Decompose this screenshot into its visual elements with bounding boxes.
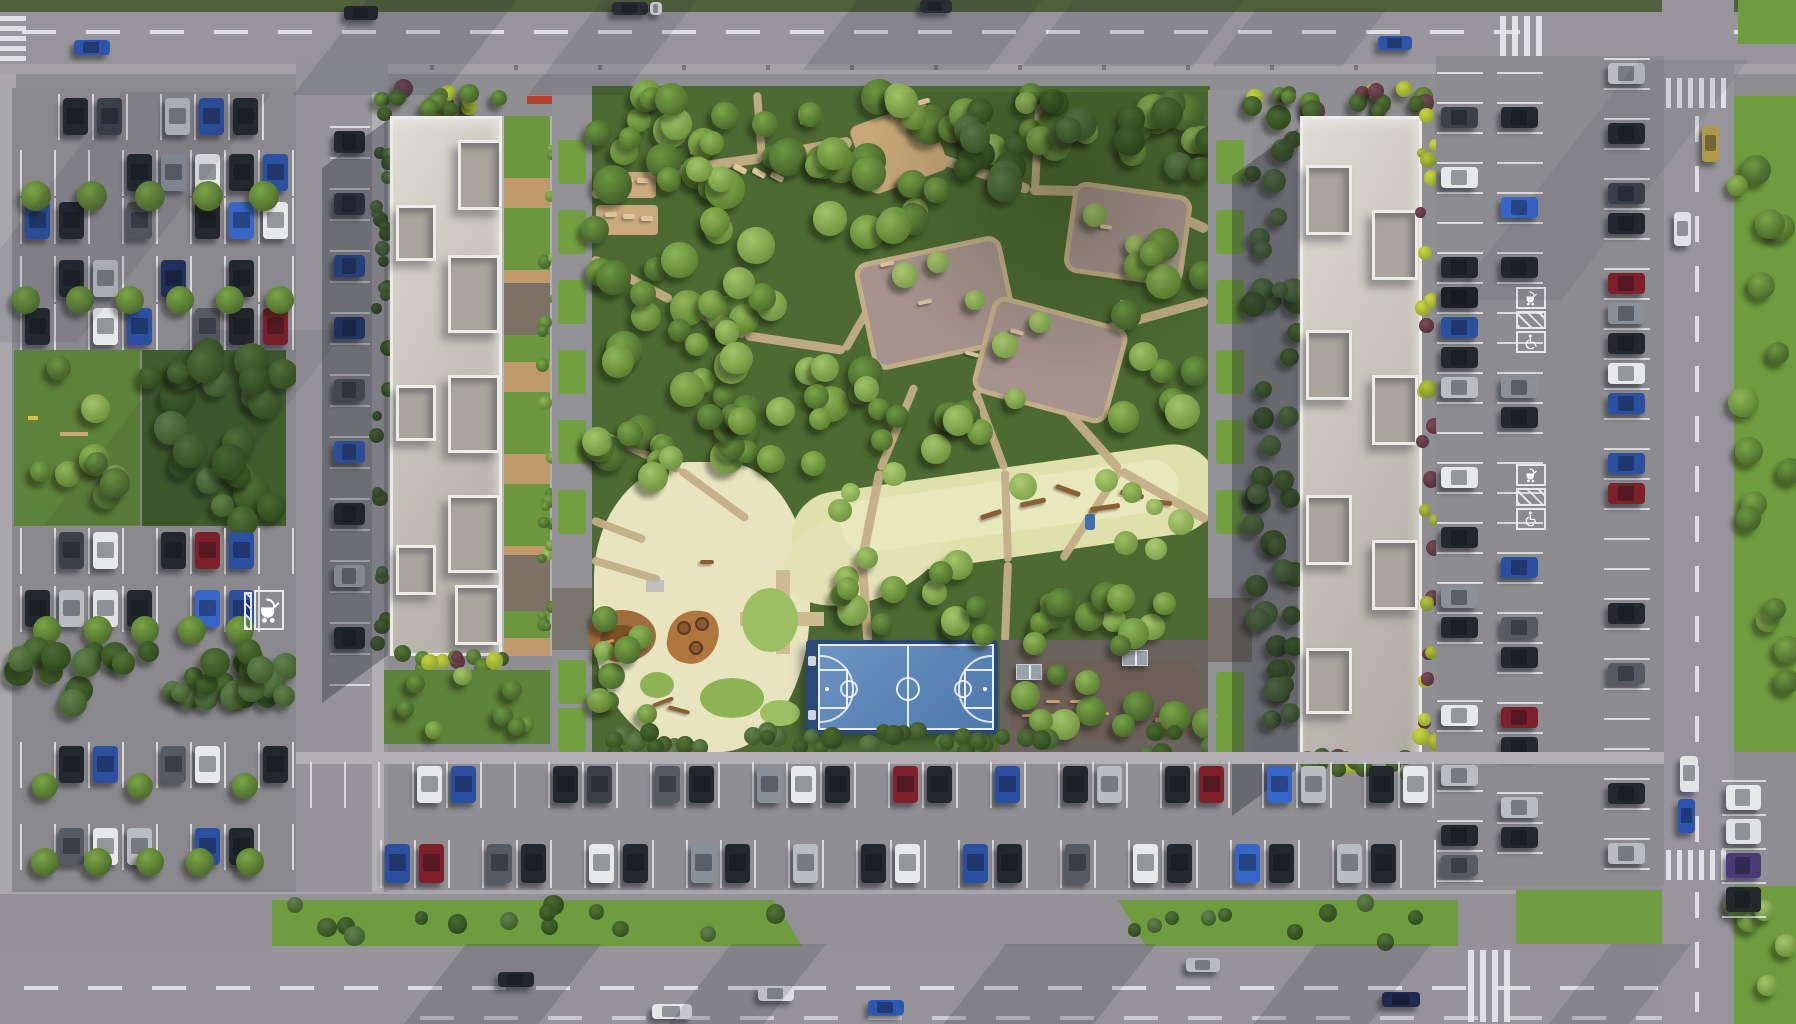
tree (247, 656, 274, 683)
court-3pt-right (958, 655, 994, 723)
aerial-site-plan (0, 0, 1796, 1024)
parked-car (589, 844, 614, 883)
east-green-corner-north (1738, 0, 1796, 44)
deck-loungers (641, 216, 653, 221)
stall-line (1497, 822, 1543, 824)
stall-line (258, 256, 260, 302)
parked-car (1441, 617, 1478, 638)
parked-car (623, 844, 648, 883)
parked-car (1501, 707, 1538, 728)
car-glass (1137, 854, 1155, 871)
parked-car (1608, 273, 1645, 294)
parked-car (93, 532, 118, 569)
roof-well (448, 375, 500, 453)
tree (661, 242, 697, 278)
stall-line (258, 528, 260, 574)
stall-line (20, 528, 22, 574)
stall-line (1604, 298, 1650, 300)
stall-line (582, 762, 584, 808)
roof-well (1372, 375, 1418, 445)
stall-line (1497, 792, 1543, 794)
stall-line (1604, 418, 1650, 420)
stall-line (224, 528, 226, 574)
tree (589, 904, 604, 919)
tree (909, 722, 927, 740)
tree (798, 102, 822, 126)
stall-line (1437, 552, 1483, 554)
stall-line (378, 762, 380, 808)
parked-car (1441, 467, 1478, 488)
parked-car (63, 98, 88, 135)
basketball-court (806, 640, 998, 734)
parked-car (1369, 766, 1394, 803)
moving-car (1186, 958, 1220, 972)
net-line (1135, 651, 1137, 665)
stall-line (1497, 372, 1543, 374)
stall-line (380, 840, 382, 888)
tree (630, 281, 656, 307)
parked-car (825, 766, 850, 803)
car-glass (233, 542, 251, 558)
crosswalk-west-edge (0, 16, 26, 62)
tree (582, 427, 612, 457)
stall-line (224, 742, 226, 788)
stall-line (1497, 132, 1543, 134)
car-glass (389, 854, 407, 871)
tree (1242, 96, 1262, 116)
stall-line (1332, 840, 1334, 888)
car-glass (1451, 110, 1467, 125)
tree (766, 904, 785, 923)
tree (1095, 469, 1118, 492)
car-glass (1735, 891, 1750, 909)
roof-well (396, 545, 436, 595)
car-glass (1273, 854, 1291, 871)
tree (491, 90, 507, 106)
car-glass (165, 542, 183, 558)
stall-line (686, 840, 688, 888)
tree (972, 624, 995, 647)
tree (1416, 435, 1429, 448)
stall-line (122, 742, 124, 788)
parked-car (995, 766, 1020, 803)
tree (921, 434, 951, 464)
parked-car (1441, 167, 1478, 188)
parked-car (1608, 783, 1645, 804)
tree (1774, 669, 1796, 694)
car-glass (1305, 776, 1323, 792)
accessible-parking-icon (1516, 331, 1546, 353)
parked-car (1501, 377, 1538, 398)
car-glass (97, 542, 115, 558)
promenade-green-island (558, 350, 586, 394)
stall-line (1604, 628, 1650, 630)
stall-line (1437, 642, 1483, 644)
parked-car (757, 766, 782, 803)
stall-line (1722, 814, 1766, 816)
deck-loungers (637, 178, 649, 183)
stall-line (1058, 762, 1060, 808)
tree (711, 102, 738, 129)
tree (1146, 724, 1163, 741)
car-glass (1618, 396, 1634, 411)
car-glass (1451, 530, 1467, 545)
tree (1153, 592, 1176, 615)
car-glass (1511, 620, 1527, 635)
stall-line (1604, 868, 1650, 870)
stall-line (958, 840, 960, 888)
stall-line (344, 762, 346, 808)
stall-line (550, 840, 552, 888)
tree (1774, 636, 1796, 664)
roof-well (455, 585, 500, 645)
parked-car (1726, 785, 1761, 810)
stall-line (1437, 162, 1483, 164)
stall-line (1604, 778, 1650, 780)
moving-car (1378, 36, 1412, 50)
tree (1266, 105, 1291, 130)
parked-car (655, 766, 680, 803)
car-glass (63, 838, 81, 854)
tree (685, 333, 708, 356)
roof-well (458, 140, 502, 210)
car-glass (233, 270, 251, 286)
stall-line (1497, 402, 1543, 404)
parked-car (487, 844, 512, 883)
terrace-deck (504, 454, 550, 484)
stall-line (224, 150, 226, 196)
tree (817, 137, 850, 170)
stall-line (122, 528, 124, 574)
car-glass (1451, 708, 1467, 723)
car-glass (557, 776, 575, 792)
tree (670, 372, 705, 407)
stall-line (1604, 388, 1650, 390)
basketball-hoop (825, 687, 829, 691)
stall-line (1604, 268, 1650, 270)
parked-car (1501, 557, 1538, 578)
stall-line (190, 198, 192, 244)
tree (581, 216, 608, 243)
stall-line (922, 762, 924, 808)
tree (752, 111, 778, 137)
stall-line (1604, 358, 1650, 360)
parked-car (1441, 705, 1478, 726)
stall-line (1432, 762, 1434, 808)
stall-line (990, 762, 992, 808)
promenade-green-island (558, 280, 586, 324)
stall-line (156, 256, 158, 302)
tree (249, 181, 279, 211)
tree (813, 201, 848, 236)
car-glass (865, 854, 883, 871)
car-glass (233, 164, 251, 180)
tree (657, 167, 682, 192)
parked-car (587, 766, 612, 803)
tree (886, 405, 909, 428)
car-glass (491, 854, 509, 871)
promenade-green-island (558, 708, 586, 752)
tree (1728, 387, 1758, 417)
stall-line (1437, 192, 1483, 194)
stall-line (924, 840, 926, 888)
stall-line (992, 840, 994, 888)
car-glass (67, 108, 85, 124)
car-glass (1451, 858, 1467, 873)
car-glass (1195, 960, 1210, 970)
car-glass (131, 318, 149, 334)
crosswalk-bottom-road (1468, 950, 1514, 1022)
stall-line (292, 824, 294, 870)
parked-car (1165, 766, 1190, 803)
car-glass (267, 756, 285, 772)
stall-line (224, 824, 226, 870)
stall-line (1722, 848, 1766, 850)
tree (1331, 762, 1346, 777)
play-mound-hole (689, 641, 703, 655)
stall-line (1437, 432, 1483, 434)
stall-line (516, 840, 518, 888)
tree (593, 165, 631, 203)
car-glass (1341, 854, 1359, 871)
family-parking-hatch (244, 592, 252, 630)
tree (537, 325, 549, 337)
stall-line (190, 742, 192, 788)
car-glass (63, 600, 81, 616)
net-line (1029, 665, 1031, 679)
stall-line (1604, 508, 1650, 510)
car-glass (83, 42, 99, 53)
stall-line (1060, 840, 1062, 888)
sand-green-island-1 (742, 588, 798, 652)
tree (966, 596, 988, 618)
car-glass (1451, 828, 1467, 843)
parked-car (791, 766, 816, 803)
moving-car (868, 1000, 904, 1015)
stall-line (190, 528, 192, 574)
stall-line (854, 762, 856, 808)
west-promenade-entry-paving (552, 588, 592, 650)
stall-line (1228, 762, 1230, 808)
parked-car (1065, 844, 1090, 883)
stall-line (1437, 372, 1483, 374)
tree (216, 286, 244, 314)
play-swing-frame (646, 580, 664, 592)
tree (619, 127, 641, 149)
roof-well (448, 255, 500, 333)
car-glass (1618, 456, 1634, 471)
tree (1009, 473, 1036, 500)
moving-car (1702, 126, 1719, 162)
tree (1046, 588, 1076, 618)
car-glass (593, 854, 611, 871)
table-tennis-table (1016, 664, 1042, 680)
court-side-structure (808, 710, 816, 720)
car-glass (1511, 710, 1527, 725)
tree (8, 646, 33, 671)
tree (871, 429, 893, 451)
car-glass (1451, 380, 1467, 395)
play-mound-hole (677, 621, 691, 635)
stall-line (1366, 840, 1368, 888)
car-glass (97, 756, 115, 772)
car-glass (1618, 336, 1634, 351)
stall-line (1437, 730, 1483, 732)
parked-car (521, 844, 546, 883)
parked-car (1608, 333, 1645, 354)
tree (1146, 499, 1163, 516)
stall-line (1160, 762, 1162, 808)
car-glass (1001, 854, 1019, 871)
tree (929, 561, 953, 585)
basketball-hoop (983, 687, 987, 691)
stall-line (292, 528, 294, 574)
fitness-bars (1046, 700, 1060, 703)
stall-line (754, 840, 756, 888)
stall-line (1604, 448, 1650, 450)
parked-car (161, 746, 186, 783)
stall-line (1128, 840, 1130, 888)
tree (1076, 696, 1106, 726)
car-glass (423, 854, 441, 871)
tree (236, 848, 264, 876)
stall-line (292, 150, 294, 196)
tree (486, 652, 503, 669)
stall-line (718, 762, 720, 808)
stall-line (1497, 642, 1543, 644)
car-glass (97, 318, 115, 334)
stall-line (1604, 568, 1650, 570)
east-road-centerline (1695, 116, 1699, 842)
stall-line (1604, 718, 1650, 720)
parked-car (229, 202, 254, 239)
tree (543, 622, 551, 630)
tree (1419, 108, 1434, 123)
parked-car (59, 828, 84, 865)
car-glass (1451, 320, 1467, 335)
stall-line (1298, 840, 1300, 888)
parked-car (161, 532, 186, 569)
stall-line (1497, 672, 1543, 674)
parked-car (927, 766, 952, 803)
tree (737, 227, 775, 265)
tree (766, 397, 795, 426)
tree (769, 138, 807, 176)
tree (344, 926, 364, 946)
car-glass (1451, 350, 1467, 365)
parked-car (195, 746, 220, 783)
tree (883, 725, 903, 745)
parked-car (1608, 843, 1645, 864)
parked-car (1441, 107, 1478, 128)
parked-car (1097, 766, 1122, 803)
stall-line (1604, 808, 1650, 810)
terrace-deck (504, 178, 550, 208)
stall-line (1604, 688, 1650, 690)
tree (970, 732, 987, 749)
stall-line (1262, 762, 1264, 808)
parked-car (1501, 797, 1538, 818)
crosswalk-east-road-south (1666, 850, 1728, 880)
car-glass (1618, 276, 1634, 291)
tree (1420, 596, 1434, 610)
tree (1777, 458, 1796, 484)
stall-line (480, 762, 482, 808)
stall-line (122, 586, 124, 632)
stall-line (1398, 762, 1400, 808)
car-glass (1069, 854, 1087, 871)
tree (686, 157, 711, 182)
roof-well (1306, 495, 1352, 565)
stall-line (1604, 538, 1650, 540)
car-glass (97, 600, 115, 616)
parked-car (1235, 844, 1260, 883)
parked-car (895, 844, 920, 883)
play-equipment-small (700, 560, 714, 564)
tree (538, 517, 549, 528)
stall-line (292, 198, 294, 244)
deck-loungers (605, 212, 617, 217)
stall-line (1497, 162, 1543, 164)
car-glass (267, 164, 285, 180)
car-glass (1375, 854, 1393, 871)
stall-line (330, 126, 370, 128)
stall-line (1722, 916, 1766, 918)
tree (612, 921, 628, 937)
parked-car (1726, 819, 1761, 844)
courtyard-bench (60, 432, 88, 436)
moving-car (74, 40, 110, 55)
car-glass (199, 212, 217, 228)
stall-line (616, 762, 618, 808)
stall-line (1497, 732, 1543, 734)
parked-car (419, 844, 444, 883)
car-glass (1169, 776, 1187, 792)
tree (397, 700, 414, 717)
parked-car (1371, 844, 1396, 883)
car-glass (199, 756, 217, 772)
stall-line (1722, 882, 1766, 884)
sand-green-island-2 (700, 678, 764, 718)
tree (592, 606, 617, 631)
stall-line (1437, 850, 1483, 852)
tree (804, 384, 829, 409)
parked-car (229, 532, 254, 569)
car-glass (1705, 135, 1717, 151)
tree (637, 704, 657, 724)
stall-line (1497, 432, 1543, 434)
promenade-green-island (558, 140, 586, 184)
car-glass (1618, 786, 1634, 801)
car-glass (1511, 380, 1527, 395)
roof-well (1306, 165, 1352, 235)
tree (1419, 318, 1434, 333)
parked-car (1608, 483, 1645, 504)
parked-car (793, 844, 818, 883)
terrace-entry-paving-2 (504, 555, 550, 611)
tree (1167, 725, 1182, 740)
promenade-green-island (558, 490, 586, 534)
car-glass (899, 854, 917, 871)
stall-line (1437, 612, 1483, 614)
stall-line (890, 840, 892, 888)
tree (1764, 598, 1786, 620)
car-glass (1239, 854, 1257, 871)
stall-line (1604, 598, 1650, 600)
tree (1023, 632, 1046, 655)
tree (598, 663, 624, 689)
tree (257, 493, 286, 522)
